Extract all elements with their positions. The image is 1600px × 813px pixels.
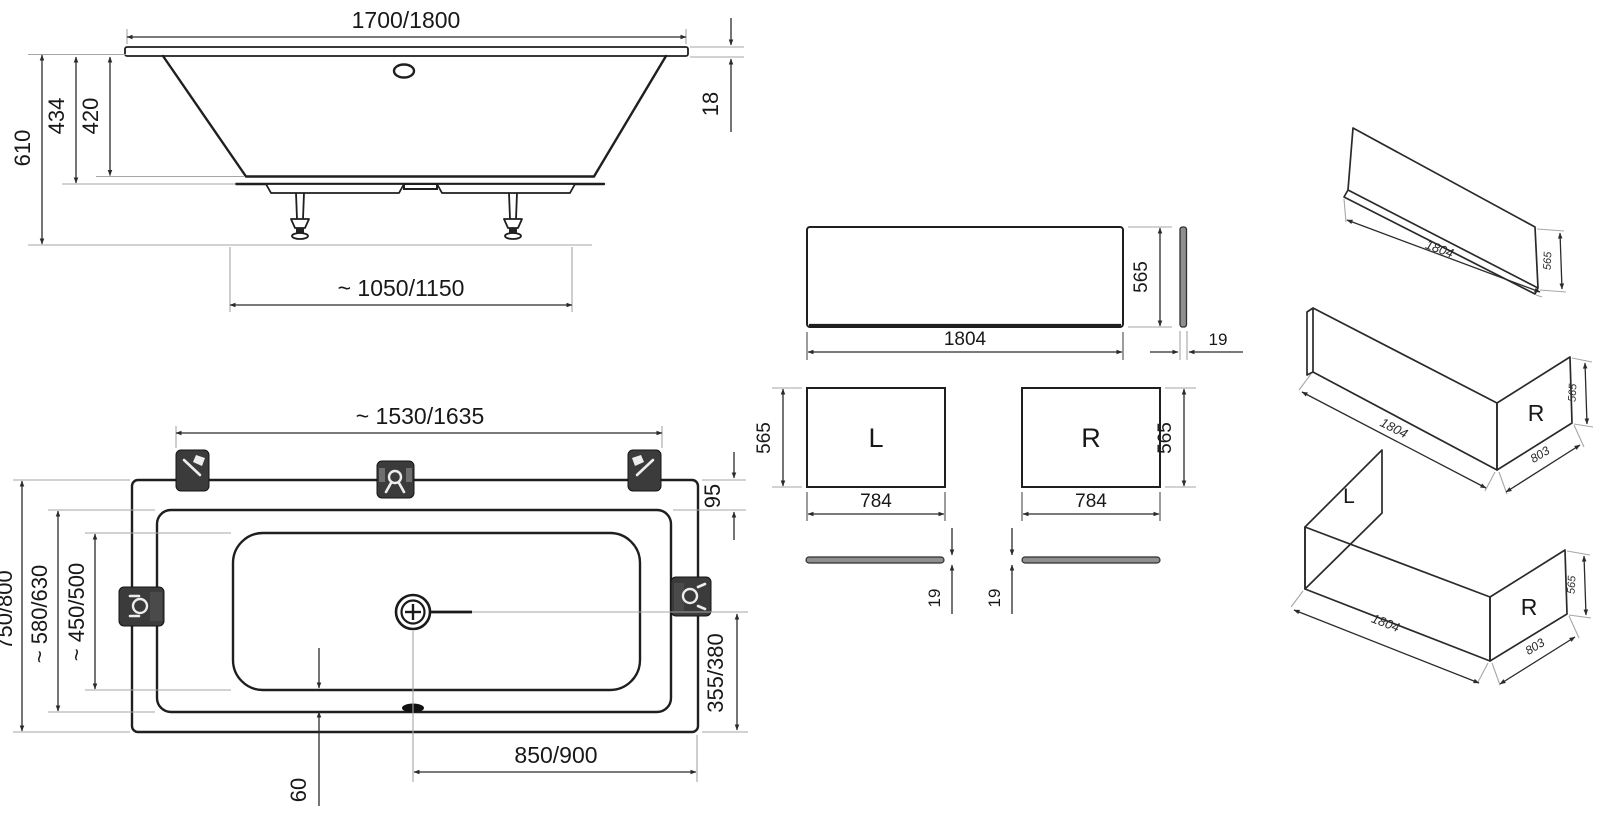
dim-label-drain-to-edge: 355/380 bbox=[703, 633, 728, 713]
bathtub-technical-drawing: 1700/1800 18 610 434 420 ~ bbox=[0, 0, 1600, 813]
dim-label-left-panel-thickness: 19 bbox=[925, 589, 944, 608]
iso-u-dim-side: 803 bbox=[1492, 616, 1579, 685]
panel-flat-views: 1804 565 19 L 565 78 bbox=[754, 227, 1243, 614]
dim-label-drain-to-end: 850/900 bbox=[514, 742, 597, 768]
iso-u-dim-length-label: 1804 bbox=[1369, 611, 1401, 635]
iso-front-dim-height-label: 565 bbox=[1542, 251, 1555, 271]
iso-front-dim-length-label: 1804 bbox=[1423, 237, 1455, 261]
iso-front-dim-height: 565 bbox=[1537, 229, 1566, 292]
dim-label-overflow-gap: 60 bbox=[286, 778, 311, 802]
technical-drawing-sheet: 1700/1800 18 610 434 420 ~ bbox=[0, 0, 1600, 813]
front-panel-face bbox=[807, 227, 1123, 327]
dim-label-front-panel-thickness: 19 bbox=[1209, 330, 1228, 349]
dim-front-panel-length: 1804 bbox=[807, 329, 1123, 360]
dim-right-panel-thickness: 19 bbox=[985, 528, 1012, 614]
dim-support-span: ~ 1050/1150 bbox=[230, 247, 572, 312]
dim-label-total-height: 610 bbox=[10, 130, 35, 167]
support-frame bbox=[266, 184, 575, 193]
iso-u-dim-length: 1804 bbox=[1291, 591, 1488, 683]
dim-right-panel-height: 565 bbox=[1155, 388, 1196, 487]
iso-u-right-label: R bbox=[1521, 594, 1538, 620]
dim-label-rim-offset: 95 bbox=[700, 484, 725, 508]
dim-heights: 610 434 420 bbox=[10, 55, 592, 246]
right-panel-label: R bbox=[1081, 423, 1101, 453]
iso-u-left-face bbox=[1305, 450, 1382, 589]
dim-drain-to-end: 850/900 bbox=[413, 631, 697, 782]
dim-drain-to-edge: 355/380 bbox=[472, 612, 748, 732]
iso-fr-dim-height-label: 565 bbox=[1567, 382, 1580, 402]
iso-fr-right-label: R bbox=[1528, 400, 1545, 426]
dim-label-right-panel-thickness: 19 bbox=[985, 589, 1004, 608]
bracket-top-right bbox=[628, 450, 661, 491]
dim-left-panel-height: 565 bbox=[754, 388, 802, 487]
iso-fr-dim-length-label: 1804 bbox=[1378, 415, 1411, 441]
dim-overflow-gap: 60 bbox=[286, 648, 319, 806]
dim-label-left-panel-width: 784 bbox=[860, 491, 892, 512]
dim-label-depth-outer: 434 bbox=[44, 98, 69, 135]
dim-top-width: 1700/1800 bbox=[127, 7, 686, 44]
right-panel-edge-view bbox=[1022, 557, 1160, 563]
dim-label-right-panel-width: 784 bbox=[1075, 491, 1107, 512]
bracket-right-middle bbox=[671, 577, 711, 616]
iso-fr-dim-side-label: 803 bbox=[1528, 443, 1553, 466]
bracket-left-middle bbox=[119, 587, 164, 626]
iso-fr-dim-length: 1804 bbox=[1299, 374, 1495, 491]
dim-label-right-panel-height: 565 bbox=[1155, 422, 1176, 454]
adjustable-leg-left bbox=[291, 193, 309, 239]
dim-rim-offset: 95 bbox=[673, 452, 746, 540]
dim-plan-widths: 750/800 ~ 580/630 ~ 450/500 bbox=[0, 480, 231, 732]
dim-label-support-span: ~ 1050/1150 bbox=[338, 275, 465, 301]
dim-label-bracket-span: ~ 1530/1635 bbox=[356, 403, 485, 429]
side-elevation-view: 1700/1800 18 610 434 420 ~ bbox=[10, 7, 744, 312]
dim-front-panel-thickness: 19 bbox=[1150, 330, 1243, 360]
dim-right-panel-width: 784 bbox=[1022, 491, 1160, 521]
tub-outer-edge bbox=[132, 480, 698, 732]
iso-view-u-shape: L R 1804 803 565 bbox=[1291, 450, 1591, 685]
iso-u-front-face bbox=[1305, 527, 1490, 661]
dim-label-top-width: 1700/1800 bbox=[352, 7, 461, 33]
dim-label-left-panel-height: 565 bbox=[754, 422, 775, 454]
dim-front-panel-height: 565 bbox=[1128, 227, 1172, 327]
dim-label-width-basin: ~ 450/500 bbox=[64, 563, 89, 661]
dim-bracket-span: ~ 1530/1635 bbox=[176, 403, 662, 448]
dim-label-width-outer: 750/800 bbox=[0, 570, 17, 650]
dim-label-depth-inner: 420 bbox=[78, 98, 103, 135]
dim-left-panel-thickness: 19 bbox=[925, 528, 952, 614]
dim-label-rim-thickness: 18 bbox=[698, 92, 723, 116]
dim-label-front-panel-height: 565 bbox=[1131, 261, 1152, 293]
iso-front-face bbox=[1348, 128, 1538, 288]
iso-fr-dim-side: 803 bbox=[1499, 425, 1584, 494]
iso-u-dim-height-label: 565 bbox=[1566, 574, 1579, 594]
bracket-top-center bbox=[377, 461, 414, 498]
drain-hole bbox=[394, 65, 414, 78]
iso-fr-left-cap bbox=[1307, 308, 1313, 375]
bracket-top-left bbox=[176, 450, 209, 491]
drain-symbol bbox=[396, 595, 472, 629]
front-panel-edge-view bbox=[1180, 227, 1187, 327]
adjustable-leg-right bbox=[504, 193, 522, 239]
dim-label-width-rim: ~ 580/630 bbox=[27, 565, 52, 663]
dim-label-front-panel-length: 1804 bbox=[944, 329, 987, 350]
left-panel-edge-view bbox=[806, 557, 944, 563]
left-panel-label: L bbox=[868, 423, 883, 453]
dim-rim-thickness: 18 bbox=[690, 18, 744, 132]
plan-view: ~ 1530/1635 95 750/800 ~ 580/630 ~ 450/5… bbox=[0, 403, 748, 806]
tub-rim-profile bbox=[125, 47, 688, 56]
iso-view-front-right: R 1804 803 565 bbox=[1299, 308, 1593, 494]
iso-u-dim-height: 565 bbox=[1566, 551, 1591, 618]
dim-left-panel-width: 784 bbox=[807, 491, 945, 521]
iso-view-front-panel: 1804 565 bbox=[1344, 128, 1566, 297]
iso-u-left-label: L bbox=[1343, 485, 1355, 508]
tub-shell-profile bbox=[163, 56, 666, 177]
